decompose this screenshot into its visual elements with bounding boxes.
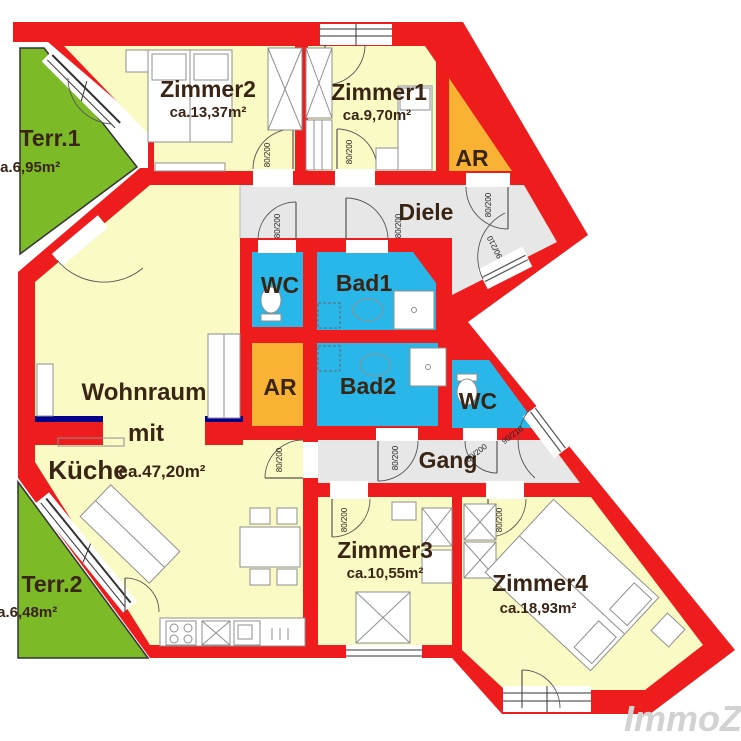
area-terr1: ca.6,95m² [0,159,60,176]
door-opening-bad2 [376,428,418,441]
label-bad1: Bad1 [336,270,392,296]
label-diele: Diele [399,199,454,225]
divider-window-left [35,416,103,422]
area-wohnraum: ca.47,20m² [119,462,206,481]
door-label: 80/200 [275,447,284,472]
area-zimmer3: ca.10,55m² [347,565,424,582]
door-label: 80/200 [391,445,400,470]
room-divider-right [205,421,243,445]
door-opening-zimmer4 [486,481,524,499]
room-divider-left [35,421,103,445]
door-opening-wc1 [258,240,296,253]
window-zimmer1-top [320,24,392,45]
door-label: 80/200 [484,192,493,217]
door-opening-bad1 [346,240,388,253]
label-zimmer3: Zimmer3 [337,537,433,563]
door-label: 80/200 [394,213,403,238]
window-terrace-door-zimmer4 [503,686,591,712]
window-zimmer3-bottom [346,645,422,662]
label-wohnraum-3: Küche [48,455,127,485]
label-wc1: WC [261,272,299,298]
label-wohnraum-1: Wohnraum [82,379,207,406]
door-opening-wc2 [463,428,497,441]
floor-plan-svg: Terr.1 ca.6,95m² Zimmer2 ca.13,37m² Zimm… [0,0,741,741]
label-zimmer4: Zimmer4 [492,570,588,596]
label-ar1: AR [455,145,489,171]
door-label: 80/200 [345,139,354,164]
door-opening-ar1 [466,173,510,187]
watermark: ImmoZ [624,698,741,739]
door-opening-zimmer3 [330,481,368,499]
area-terr2: ca.6,48m² [0,604,57,621]
kitchen-counter [160,618,305,646]
door-label: 80/200 [263,142,272,167]
label-wohnraum-2: mit [128,420,164,447]
area-zimmer4: ca.18,93m² [500,600,577,617]
door-label: 80/200 [273,213,282,238]
label-wc2: WC [459,388,497,414]
door-opening-zimmer1 [335,169,375,187]
floor-plan-page: Terr.1 ca.6,95m² Zimmer2 ca.13,37m² Zimm… [0,0,741,741]
door-opening-zimmer2 [253,169,293,187]
label-terr1: Terr.1 [20,125,81,151]
area-zimmer1: ca.9,70m² [343,107,411,124]
label-zimmer1: Zimmer1 [331,79,427,105]
area-zimmer2: ca.13,37m² [170,104,247,121]
door-opening-wohnraum-gang [303,442,318,478]
label-terr2: Terr.2 [22,571,83,597]
label-zimmer2: Zimmer2 [160,76,256,102]
door-label: 80/200 [340,507,349,532]
label-ar2: AR [263,374,297,400]
label-bad2: Bad2 [340,373,396,399]
door-label: 80/200 [495,507,504,532]
